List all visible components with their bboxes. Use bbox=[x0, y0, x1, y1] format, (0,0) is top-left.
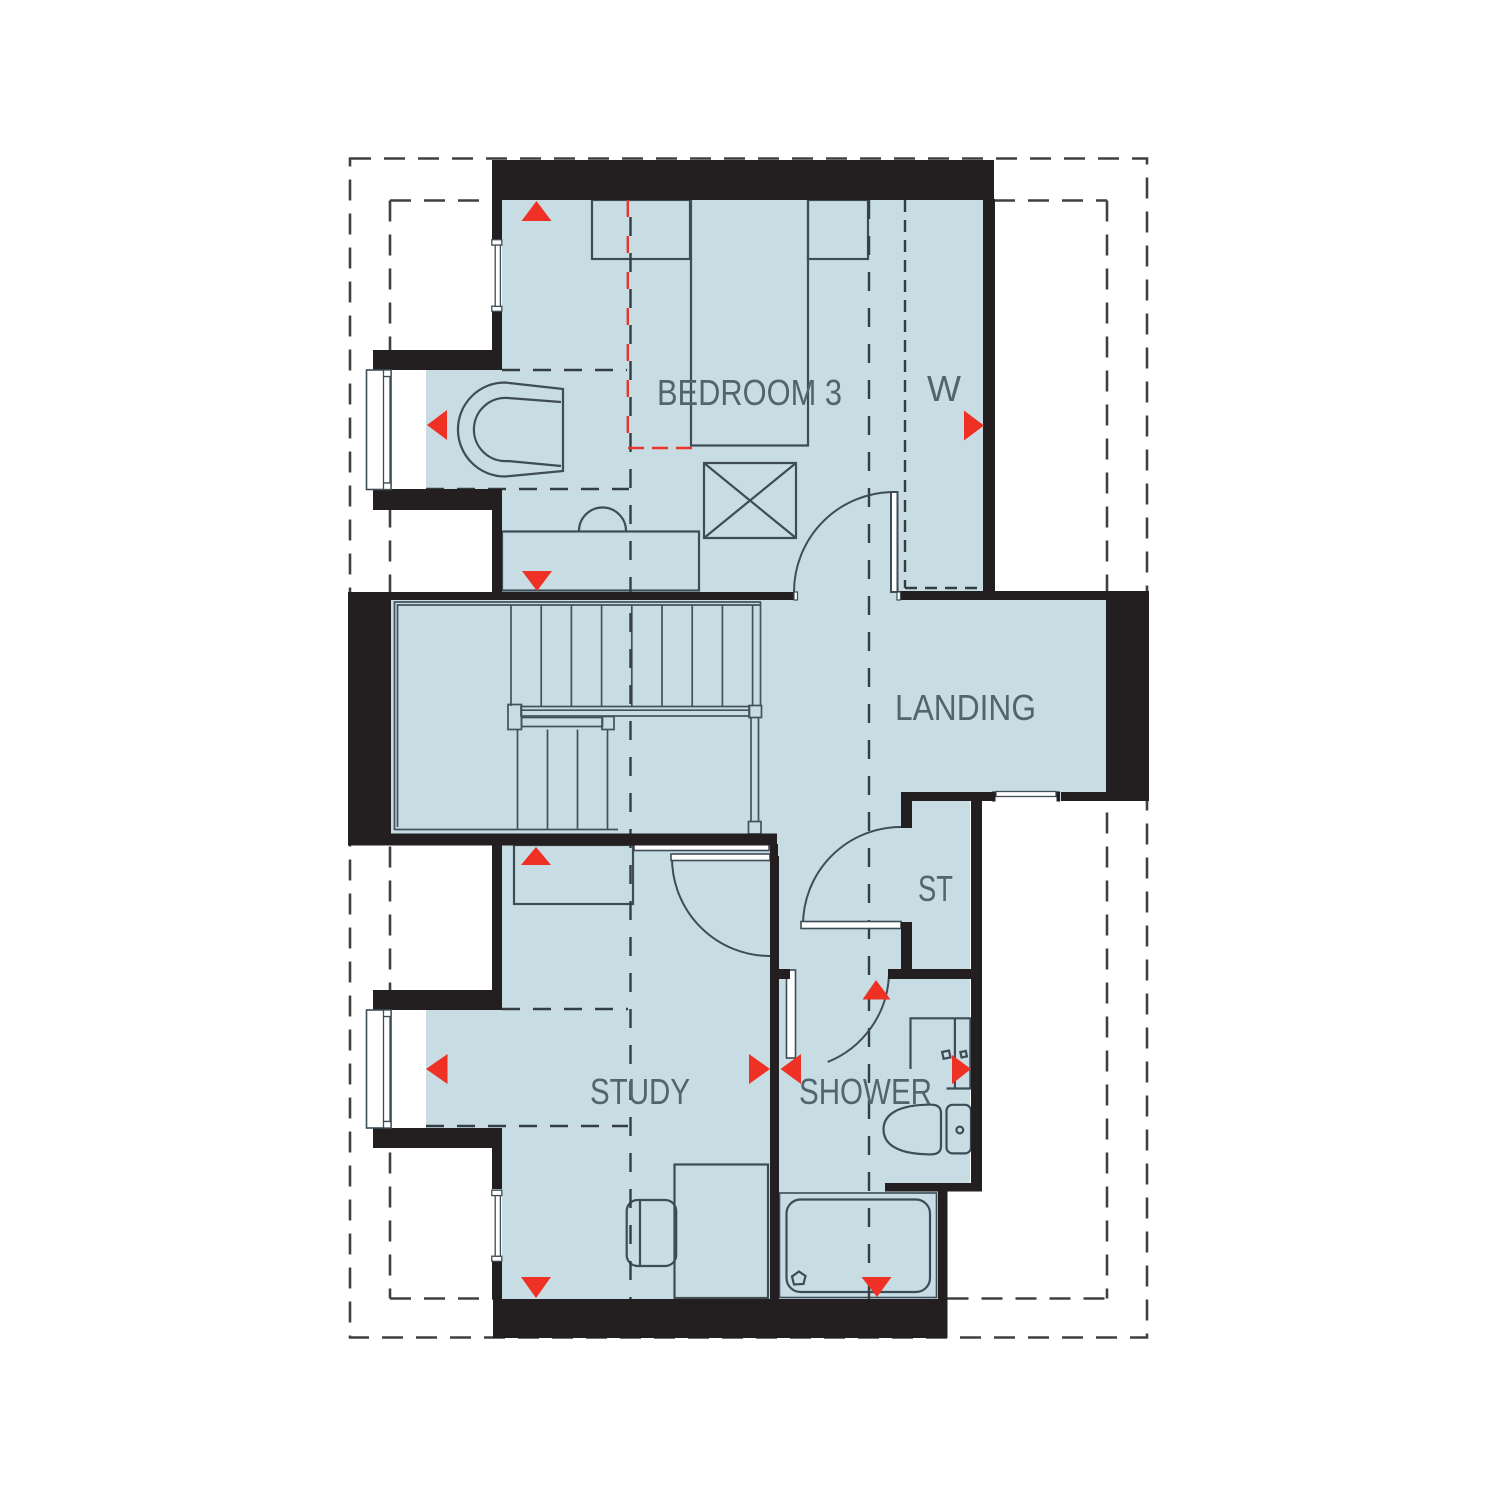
svg-text:ST: ST bbox=[918, 868, 953, 909]
svg-text:SHOWER: SHOWER bbox=[799, 1071, 932, 1112]
svg-text:W: W bbox=[927, 368, 961, 409]
svg-text:STUDY: STUDY bbox=[590, 1071, 690, 1112]
svg-text:LANDING: LANDING bbox=[895, 687, 1036, 728]
svg-text:BEDROOM 3: BEDROOM 3 bbox=[657, 372, 842, 413]
